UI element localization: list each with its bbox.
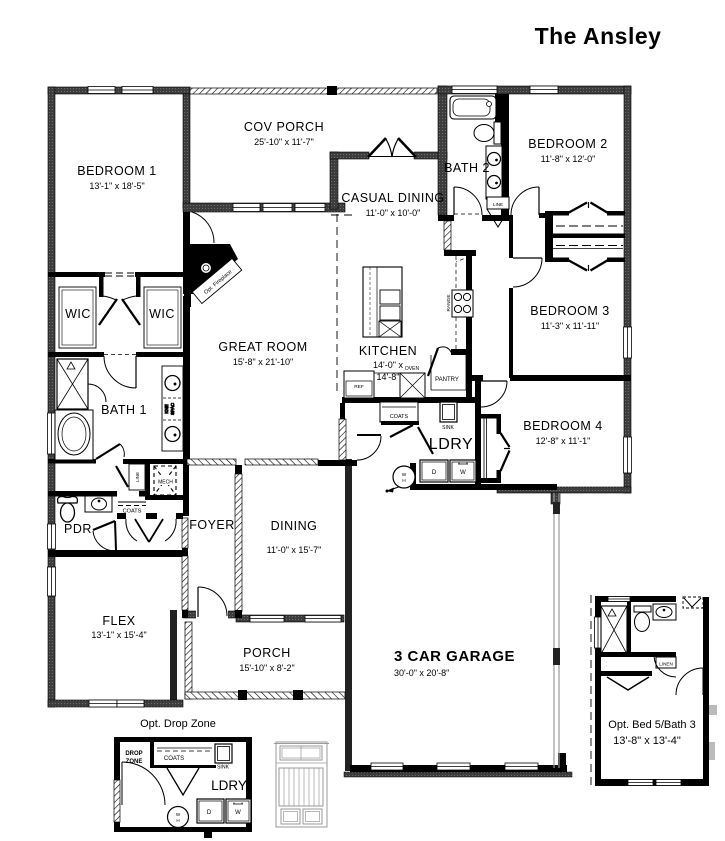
svg-text:12'-8" x 11'-1": 12'-8" x 11'-1" — [536, 436, 591, 446]
svg-text:15'-10" x 8'-2": 15'-10" x 8'-2" — [239, 663, 294, 673]
svg-text:BEDROOM 2: BEDROOM 2 — [528, 137, 608, 151]
svg-text:BEDROOM 4: BEDROOM 4 — [523, 419, 603, 433]
svg-text:The Ansley: The Ansley — [535, 23, 662, 49]
svg-text:BEDROOM 1: BEDROOM 1 — [77, 164, 157, 178]
svg-text:SINK: SINK — [217, 765, 230, 771]
svg-text:W: W — [460, 470, 466, 476]
svg-text:30'-0" x 20'-8": 30'-0" x 20'-8" — [394, 668, 449, 678]
svg-text:KNE: KNE — [164, 404, 169, 413]
svg-text:MECH: MECH — [158, 480, 173, 486]
svg-text:COATS: COATS — [390, 414, 409, 420]
svg-text:11'-8" x 12'-0": 11'-8" x 12'-0" — [541, 154, 596, 164]
svg-text:11'-3" x 11'-11": 11'-3" x 11'-11" — [541, 321, 599, 331]
svg-text:FOYER: FOYER — [189, 518, 235, 532]
svg-text:WIC: WIC — [149, 307, 175, 321]
svg-text:LDRY: LDRY — [211, 778, 247, 793]
svg-text:BEDROOM 3: BEDROOM 3 — [530, 304, 610, 318]
svg-text:DROP: DROP — [125, 751, 142, 757]
svg-text:W: W — [402, 472, 407, 478]
svg-text:PORCH: PORCH — [243, 646, 291, 660]
svg-text:SINK: SINK — [442, 425, 454, 431]
svg-text:PDR: PDR — [64, 522, 92, 536]
svg-text:W: W — [235, 810, 241, 816]
svg-text:GREAT ROOM: GREAT ROOM — [218, 340, 307, 354]
svg-text:15'-8" x 21'-10": 15'-8" x 21'-10" — [233, 357, 293, 367]
svg-text:3 CAR GARAGE: 3 CAR GARAGE — [394, 648, 515, 665]
svg-text:LINE: LINE — [135, 472, 140, 482]
svg-text:W: W — [176, 812, 181, 817]
svg-text:DINING: DINING — [271, 519, 318, 533]
svg-text:11'-0" x 15'-7": 11'-0" x 15'-7" — [267, 545, 322, 555]
svg-text:REF: REF — [354, 384, 364, 390]
svg-text:11'-0" x 10'-0": 11'-0" x 10'-0" — [366, 208, 421, 218]
svg-text:Opt. Bed 5/Bath 3: Opt. Bed 5/Bath 3 — [608, 719, 695, 731]
svg-text:PANTRY: PANTRY — [435, 377, 459, 383]
svg-text:D: D — [432, 470, 437, 476]
svg-text:14'-0" x: 14'-0" x — [373, 360, 403, 370]
svg-text:14'-8": 14'-8" — [377, 372, 400, 382]
svg-text:RANGE: RANGE — [446, 294, 452, 311]
svg-text:D: D — [207, 810, 212, 816]
svg-text:FLEX: FLEX — [102, 614, 135, 628]
svg-text:WIC: WIC — [65, 307, 91, 321]
svg-text:13'-1" x 18'-5": 13'-1" x 18'-5" — [89, 181, 144, 191]
svg-text:25'-10" x 11'-7": 25'-10" x 11'-7" — [254, 137, 314, 147]
svg-text:COATS: COATS — [164, 756, 184, 762]
svg-text:COATS: COATS — [123, 509, 142, 515]
svg-text:KITCHEN: KITCHEN — [359, 344, 417, 358]
svg-text:13'-8" x 13'-4": 13'-8" x 13'-4" — [613, 735, 681, 747]
svg-text:CASUAL DINING: CASUAL DINING — [341, 191, 444, 205]
svg-text:BATH 1: BATH 1 — [101, 403, 147, 417]
svg-text:COV PORCH: COV PORCH — [244, 120, 324, 134]
svg-text:BATH 2: BATH 2 — [444, 161, 490, 175]
svg-text:13'-1" x 15'-4": 13'-1" x 15'-4" — [91, 630, 146, 640]
svg-text:SPAC: SPAC — [170, 402, 175, 415]
svg-text:LDRY: LDRY — [429, 436, 473, 453]
svg-text:LINE: LINE — [493, 202, 503, 207]
svg-text:OVEN: OVEN — [405, 366, 420, 372]
svg-text:H: H — [402, 478, 406, 484]
svg-text:LINEN: LINEN — [659, 662, 673, 667]
svg-text:Opt. Drop Zone: Opt. Drop Zone — [140, 718, 216, 730]
svg-text:H: H — [176, 818, 179, 823]
